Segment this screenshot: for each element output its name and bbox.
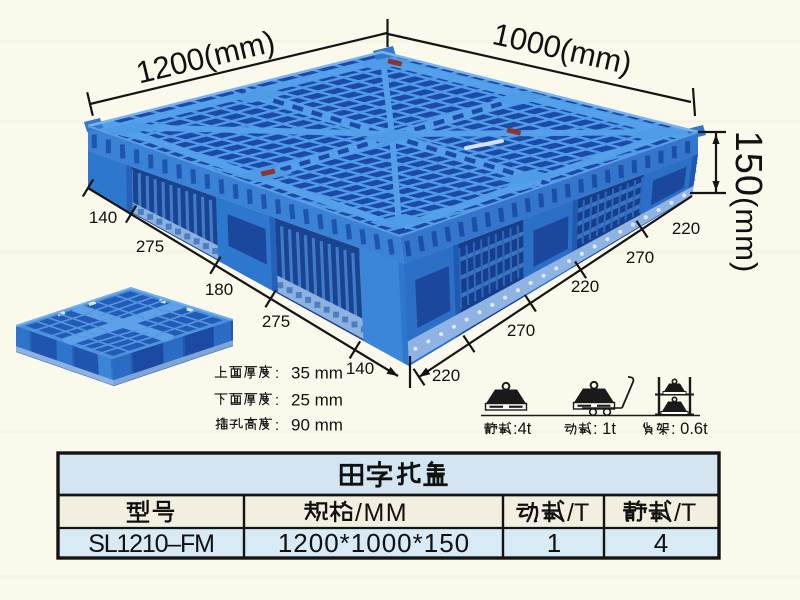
svg-text:220: 220 xyxy=(432,366,460,385)
svg-text:25 mm: 25 mm xyxy=(291,391,343,410)
svg-text:140: 140 xyxy=(89,208,117,227)
svg-text:140: 140 xyxy=(346,359,374,378)
svg-text:90 mm: 90 mm xyxy=(291,416,343,435)
svg-text:: 1t: : 1t xyxy=(593,420,616,438)
svg-text::: : xyxy=(275,392,279,409)
svg-text:275: 275 xyxy=(262,312,290,331)
svg-text::: : xyxy=(275,365,279,382)
svg-text:1200*1000*150: 1200*1000*150 xyxy=(278,528,470,558)
svg-text::: : xyxy=(275,417,279,434)
svg-text:/T: /T xyxy=(567,499,589,527)
svg-text:: 0.6t: : 0.6t xyxy=(671,420,708,438)
svg-text:SL1210–FM: SL1210–FM xyxy=(88,530,213,558)
svg-text:275: 275 xyxy=(136,237,164,256)
svg-text:/MM: /MM xyxy=(355,499,408,527)
svg-text:4: 4 xyxy=(654,528,668,558)
svg-text:270: 270 xyxy=(507,321,535,340)
svg-text:220: 220 xyxy=(672,219,700,238)
svg-text:150(mm): 150(mm) xyxy=(727,131,769,274)
svg-text::4t: :4t xyxy=(513,420,532,438)
svg-text:/T: /T xyxy=(674,499,696,527)
svg-text:180: 180 xyxy=(205,280,233,299)
svg-text:35 mm: 35 mm xyxy=(291,364,343,383)
svg-text:220: 220 xyxy=(571,277,599,296)
svg-text:1: 1 xyxy=(547,528,561,558)
svg-text:270: 270 xyxy=(626,248,654,267)
